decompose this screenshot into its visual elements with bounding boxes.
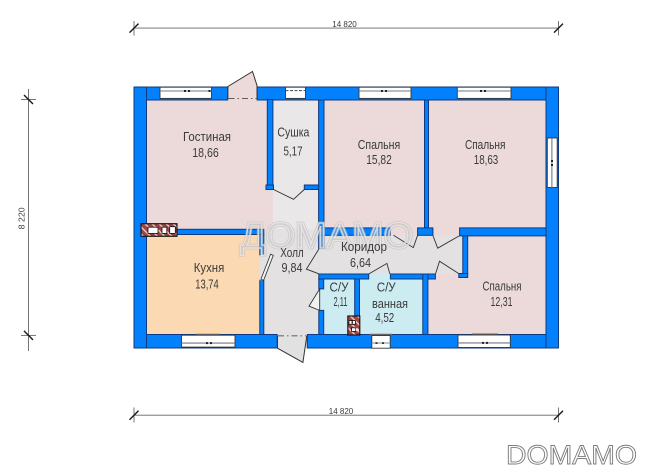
svg-text:8 220: 8 220 — [17, 207, 27, 229]
svg-text:ДОМАМО: ДОМАМО — [240, 215, 413, 256]
svg-text:Холл: Холл — [280, 245, 304, 260]
svg-text:14 820: 14 820 — [332, 19, 357, 29]
svg-text:Спальня: Спальня — [465, 137, 506, 152]
svg-text:18,63: 18,63 — [474, 152, 499, 167]
svg-text:4,52: 4,52 — [375, 310, 394, 325]
svg-text:Кухня: Кухня — [194, 260, 225, 275]
svg-text:Сушка: Сушка — [277, 124, 310, 139]
svg-text:18,66: 18,66 — [192, 145, 219, 160]
svg-text:2,11: 2,11 — [334, 294, 348, 309]
svg-text:14 820: 14 820 — [329, 406, 354, 416]
svg-text:Коридор: Коридор — [341, 239, 387, 254]
svg-text:13,74: 13,74 — [195, 276, 219, 291]
svg-text:ванная: ванная — [372, 296, 408, 311]
svg-text:Гостиная: Гостиная — [183, 129, 231, 144]
svg-text:С/У: С/У — [330, 280, 350, 295]
svg-text:12,31: 12,31 — [491, 294, 513, 309]
svg-text:С/У: С/У — [377, 280, 397, 295]
svg-text:Спальня: Спальня — [483, 279, 522, 294]
svg-text:Спальня: Спальня — [358, 137, 401, 152]
svg-text:9,84: 9,84 — [282, 260, 303, 275]
svg-text:5,17: 5,17 — [284, 144, 303, 159]
svg-text:15,82: 15,82 — [366, 152, 392, 167]
svg-text:DOMAMO: DOMAMO — [506, 440, 637, 470]
svg-text:6,64: 6,64 — [350, 255, 371, 270]
